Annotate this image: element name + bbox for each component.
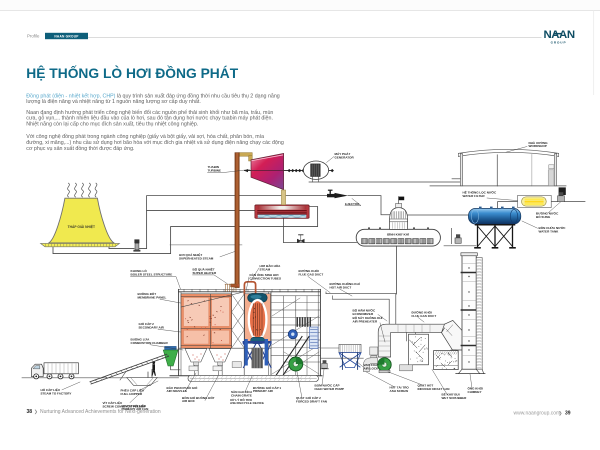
svg-text:GENERATOR: GENERATOR: [335, 156, 355, 160]
svg-text:FLUE GAS DUCT: FLUE GAS DUCT: [299, 273, 324, 277]
svg-text:FORCED DRAFT FAN: FORCED DRAFT FAN: [296, 400, 327, 404]
svg-text:COMBUSTION CHAMBER: COMBUSTION CHAMBER: [131, 341, 169, 345]
svg-text:HỆ THỐNG LÒ HƠI ĐỒNG PHÁT: HỆ THỐNG LÒ HƠI ĐỒNG PHÁT: [26, 64, 238, 81]
svg-text:ASH SCREW: ASH SCREW: [390, 389, 409, 393]
svg-text:AIR NOZZLES: AIR NOZZLES: [167, 389, 187, 393]
svg-text:AIR LOCK: AIR LOCK: [364, 366, 380, 370]
svg-text:THÁP GIẢI NHIỆT: THÁP GIẢI NHIỆT: [68, 224, 95, 229]
svg-text:WET SCRUBBER: WET SCRUBBER: [442, 396, 468, 400]
svg-text:FEED WATER PUMP: FEED WATER PUMP: [315, 387, 344, 391]
svg-text:FLUE GAS DUCT: FLUE GAS DUCT: [412, 314, 437, 318]
svg-text:STEAM TO FACTORY: STEAM TO FACTORY: [41, 391, 72, 395]
svg-text:PRIMARY AIR FAN: PRIMARY AIR FAN: [122, 407, 149, 411]
svg-text:39: 39: [565, 411, 571, 417]
svg-text:38: 38: [27, 409, 33, 415]
svg-text:EJECTOR: EJECTOR: [345, 202, 360, 206]
svg-text:BOILER STEEL STRUCTURE: BOILER STEEL STRUCTURE: [131, 273, 173, 277]
svg-text:Nhiệt năng còn lại cấp cho mục: Nhiệt năng còn lại cấp cho mục đích sản …: [26, 121, 198, 127]
svg-text:HOT AIR DUCT: HOT AIR DUCT: [330, 285, 352, 289]
svg-text:NAAN GROUP: NAAN GROUP: [54, 35, 79, 39]
svg-text:Profile: Profile: [27, 34, 40, 39]
svg-text:ASH RECYCLE DEVICE: ASH RECYCLE DEVICE: [230, 401, 264, 405]
svg-text:lượng là điện năng và nhiệt nă: lượng là điện năng và nhiệt năng từ 1 ng…: [26, 99, 201, 105]
svg-text:NAAN: NAAN: [544, 29, 575, 41]
svg-text:CHIMNEY: CHIMNEY: [468, 390, 482, 394]
svg-text:cơ phục vụ sản xuất đồng thời: cơ phục vụ sản xuất đồng thời được đáp ứ…: [26, 146, 134, 152]
svg-text:WATER FILTER: WATER FILTER: [463, 194, 486, 198]
svg-text:MEMBRANE PANEL: MEMBRANE PANEL: [138, 295, 167, 299]
svg-text:www.naangroup.com: www.naangroup.com: [514, 411, 561, 417]
svg-text:WATER TANK: WATER TANK: [539, 230, 560, 234]
svg-text:SUPER HEATER: SUPER HEATER: [193, 271, 217, 275]
svg-text:GROUP: GROUP: [551, 40, 567, 44]
svg-text:SECONDARY AIR: SECONDARY AIR: [139, 325, 165, 329]
svg-text:WORKSHOP: WORKSHOP: [529, 144, 547, 148]
svg-text:BÌNH KHỬ KHÍ: BÌNH KHỬ KHÍ: [387, 232, 409, 237]
svg-text:STEAM: STEAM: [260, 267, 271, 271]
svg-text:SUPERHEATED STEAM: SUPERHEATED STEAM: [179, 257, 214, 261]
svg-text:TURBINE: TURBINE: [208, 169, 222, 173]
svg-text:AIR PREHEATER: AIR PREHEATER: [353, 320, 378, 324]
svg-text:PRIMARY AIR: PRIMARY AIR: [253, 389, 274, 393]
svg-text:BỔ SUNG: BỔ SUNG: [536, 214, 551, 219]
svg-text:AIR BOX: AIR BOX: [182, 399, 195, 403]
svg-text:CONVECTION TUBES: CONVECTION TUBES: [250, 277, 282, 281]
